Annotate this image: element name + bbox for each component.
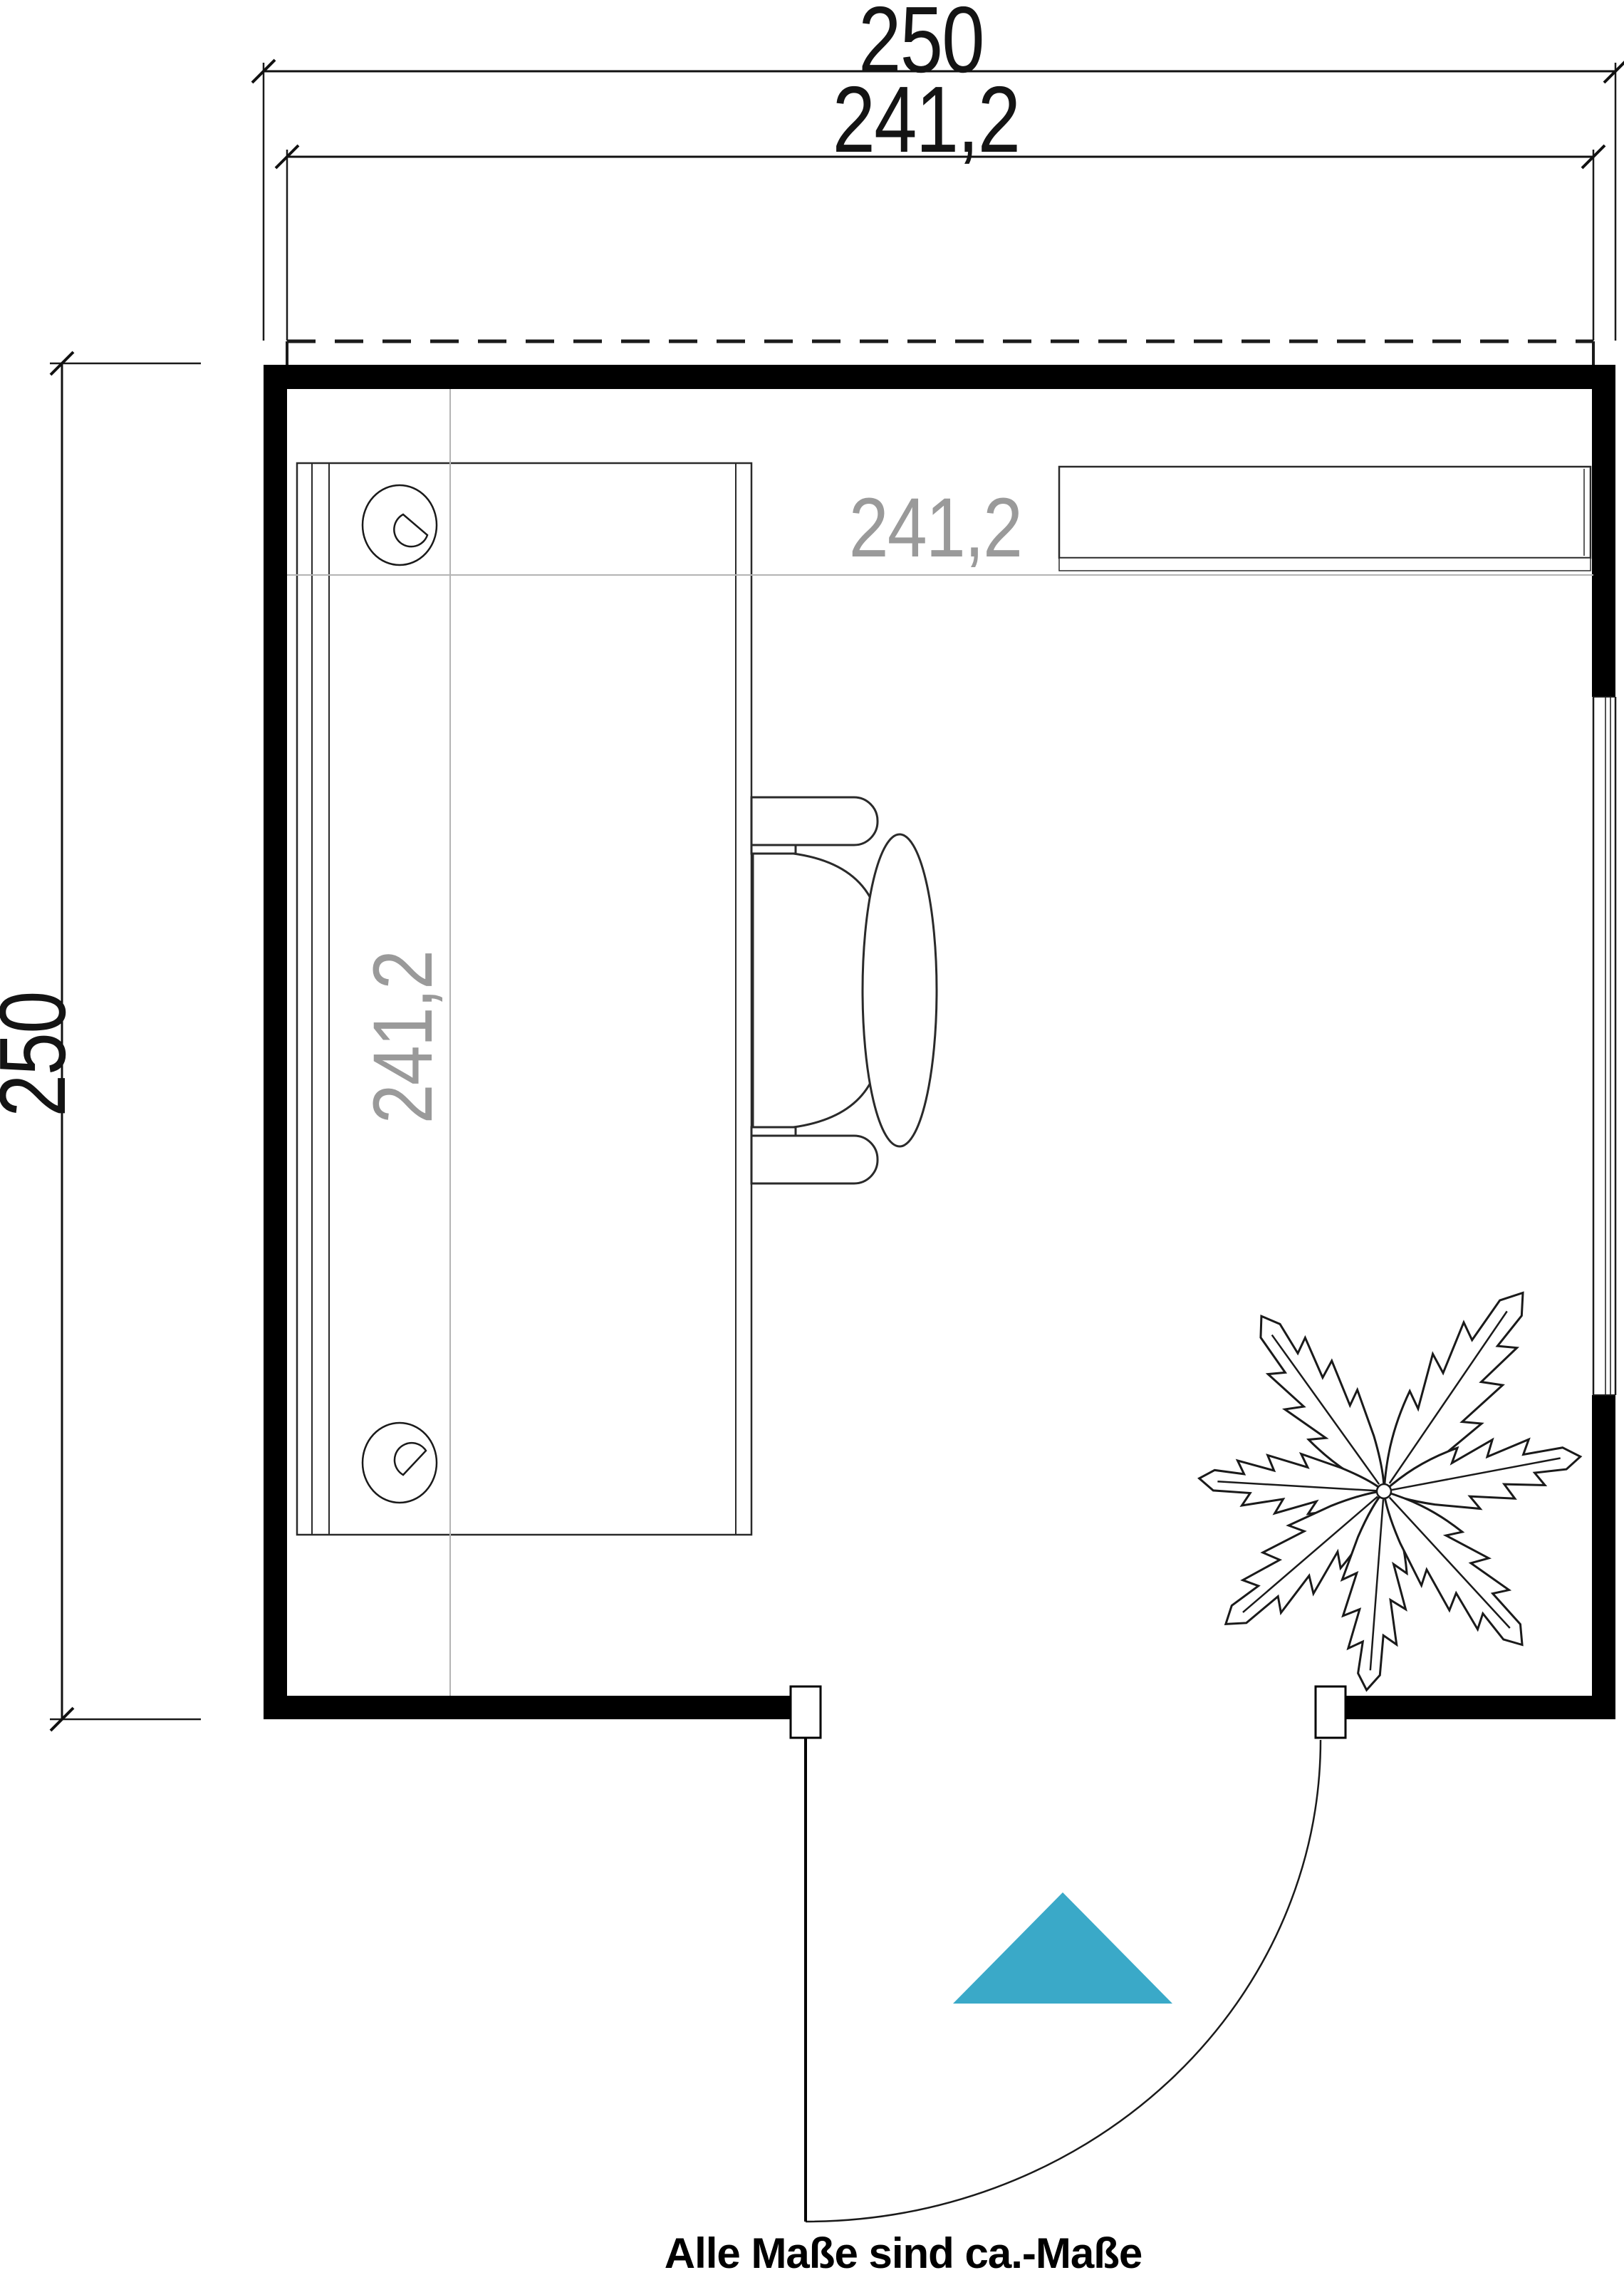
- footer-note: Alle Maße sind ca.-Maße: [665, 2230, 1142, 2277]
- window: [1593, 697, 1615, 1395]
- plan-drawing: [0, 0, 1624, 2280]
- dim-top-inner-label: 241,2: [833, 73, 1020, 167]
- office-chair: [751, 797, 937, 1183]
- entrance-arrow: [953, 1892, 1172, 2004]
- plant: [1197, 1270, 1586, 1693]
- dim-interior-width-label: 241,2: [849, 486, 1022, 570]
- door-frame-posts: [791, 1686, 1345, 1738]
- dim-left-label: 250: [0, 992, 80, 1117]
- wall-shelf: [1059, 467, 1591, 571]
- floor-plan-canvas: 250 241,2 250 241,2 241,2 Alle Maße sind…: [0, 0, 1624, 2280]
- roof-overhang-dashed-line: [287, 341, 1593, 365]
- dim-interior-depth-label: 241,2: [361, 951, 445, 1124]
